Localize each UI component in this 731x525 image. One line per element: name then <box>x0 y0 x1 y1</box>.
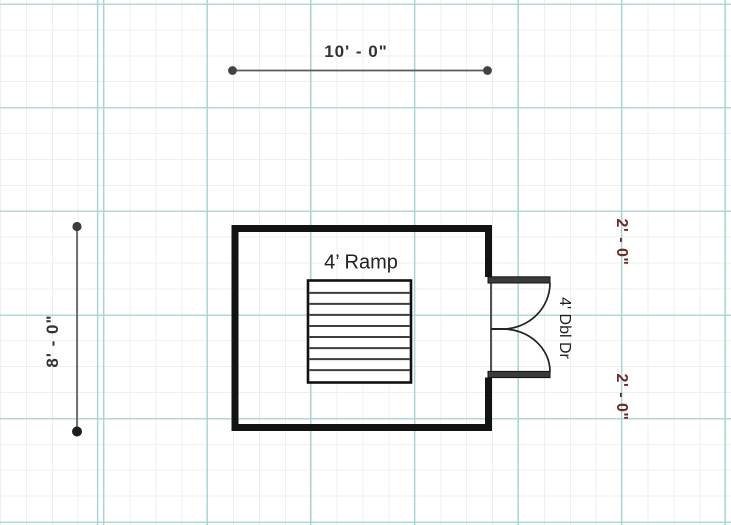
door-swing-arc-top <box>503 283 551 329</box>
dimension-endpoint-dot[interactable] <box>228 66 237 75</box>
dimension-endpoint-dot[interactable] <box>483 66 492 75</box>
floor-plan-canvas[interactable]: 10' - 0" 8' - 0" 4’ Ramp 4' Dbl Dr 2' - … <box>0 0 731 525</box>
door-swing-arc-bottom <box>503 329 551 372</box>
ramp-label[interactable]: 4’ Ramp <box>324 252 398 275</box>
ramp-shape[interactable] <box>308 281 411 383</box>
dimension-line-top[interactable] <box>228 66 492 75</box>
dimension-label-top[interactable]: 10' - 0" <box>324 42 388 62</box>
dimension-label-left[interactable]: 8' - 0" <box>43 314 63 367</box>
dimension-endpoint-dot[interactable] <box>72 427 82 437</box>
door-label[interactable]: 4' Dbl Dr <box>555 297 573 359</box>
dimension-endpoint-dot[interactable] <box>72 222 81 231</box>
offset-dimension-label-top[interactable]: 2' - 0" <box>612 219 630 266</box>
ramp-outline[interactable] <box>308 281 411 383</box>
offset-dimension-label-bottom[interactable]: 2' - 0" <box>612 374 630 421</box>
door-leaf-top[interactable] <box>488 277 550 283</box>
double-door[interactable] <box>488 277 550 378</box>
dimension-line-left[interactable] <box>72 222 82 437</box>
door-leaf-bottom[interactable] <box>488 371 550 377</box>
